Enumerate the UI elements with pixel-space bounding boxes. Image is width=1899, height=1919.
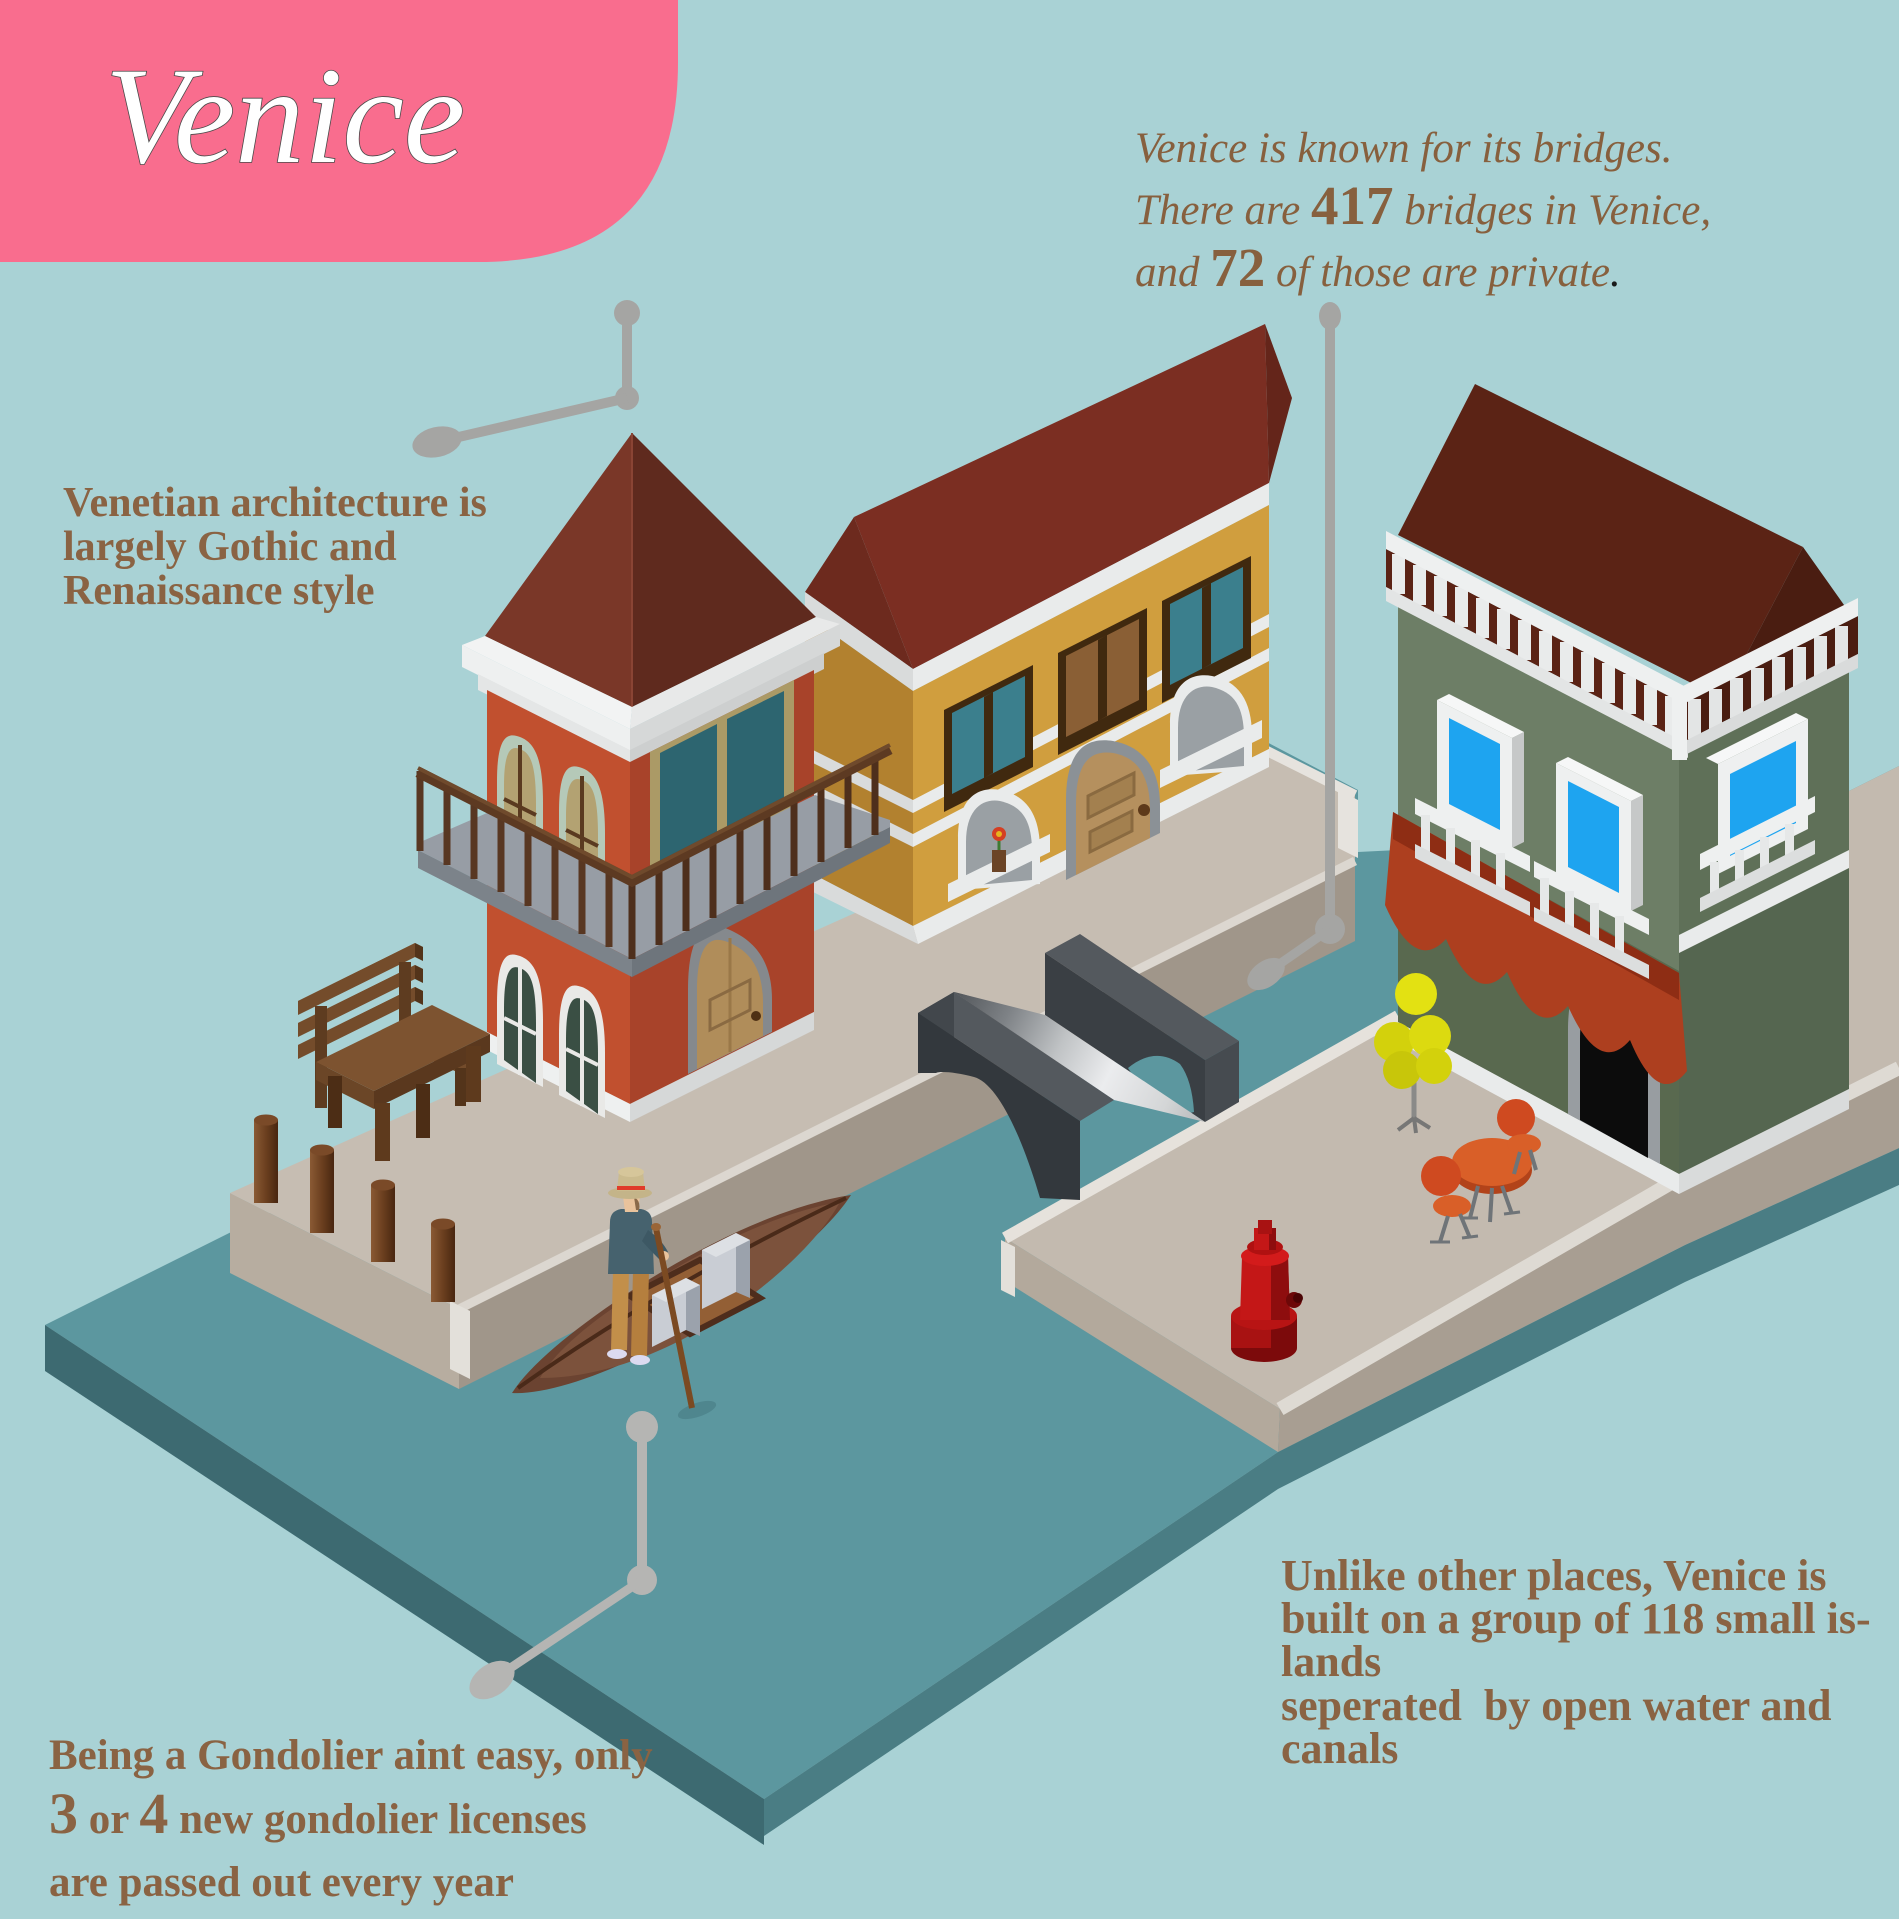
svg-text:largely Gothic and: largely Gothic and [63,524,397,570]
svg-text:are passed out every year: are passed out every year [49,1859,514,1906]
svg-text:seperated by open water and: seperated by open water and [1281,1681,1831,1730]
svg-text:lands: lands [1281,1637,1381,1686]
svg-text:Unlike other places, Venice is: Unlike other places, Venice is [1281,1551,1827,1600]
svg-text:Venice is known for its bridge: Venice is known for its bridges. [1135,125,1672,172]
svg-text:built on a group of 118 small: built on a group of 118 small is- [1281,1594,1871,1643]
svg-text:Venice: Venice [105,39,465,192]
svg-text:Renaissance style: Renaissance style [63,568,374,614]
svg-text:Venetian architecture is: Venetian architecture is [63,480,487,526]
svg-text:Being a Gondolier aint easy, o: Being a Gondolier aint easy, only [49,1732,653,1779]
svg-text:canals: canals [1281,1724,1398,1773]
